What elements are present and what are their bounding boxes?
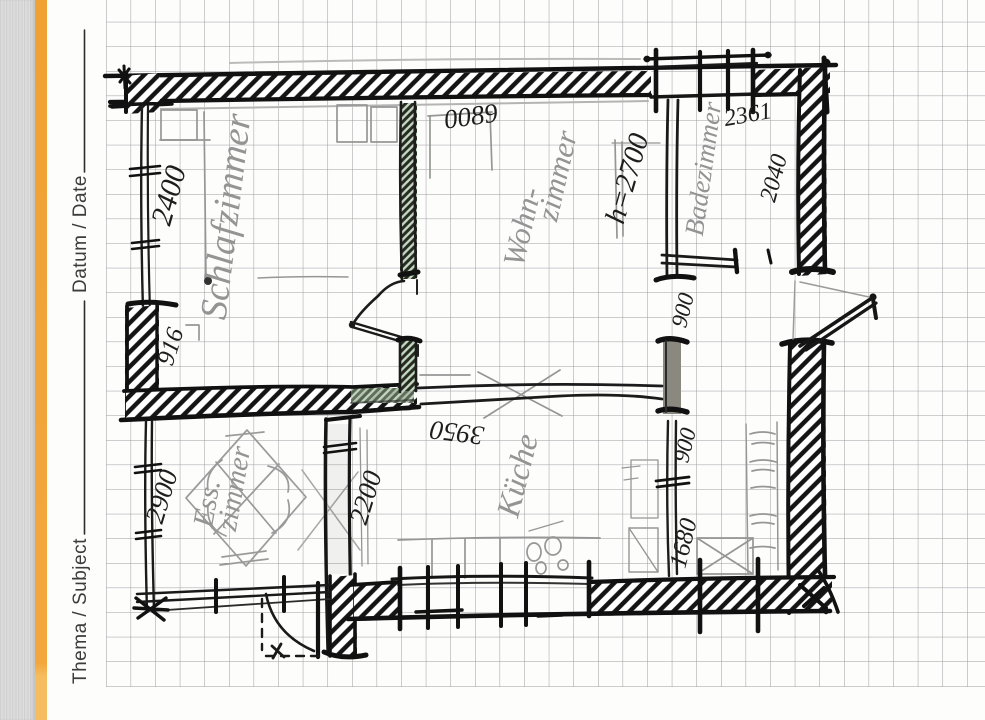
svg-text:2040: 2040 (755, 152, 793, 205)
svg-text:900: 900 (668, 425, 701, 465)
svg-text:h=2700: h=2700 (599, 129, 655, 227)
svg-text:0089: 0089 (442, 97, 500, 134)
svg-text:3950: 3950 (428, 415, 487, 452)
svg-text:2361: 2361 (722, 98, 774, 132)
svg-text:2200: 2200 (343, 467, 388, 528)
svg-text:2400: 2400 (145, 162, 193, 229)
svg-text:916: 916 (152, 324, 189, 368)
svg-text:900: 900 (666, 290, 699, 330)
svg-text:2900: 2900 (139, 466, 184, 527)
svg-text:1680: 1680 (665, 515, 703, 571)
